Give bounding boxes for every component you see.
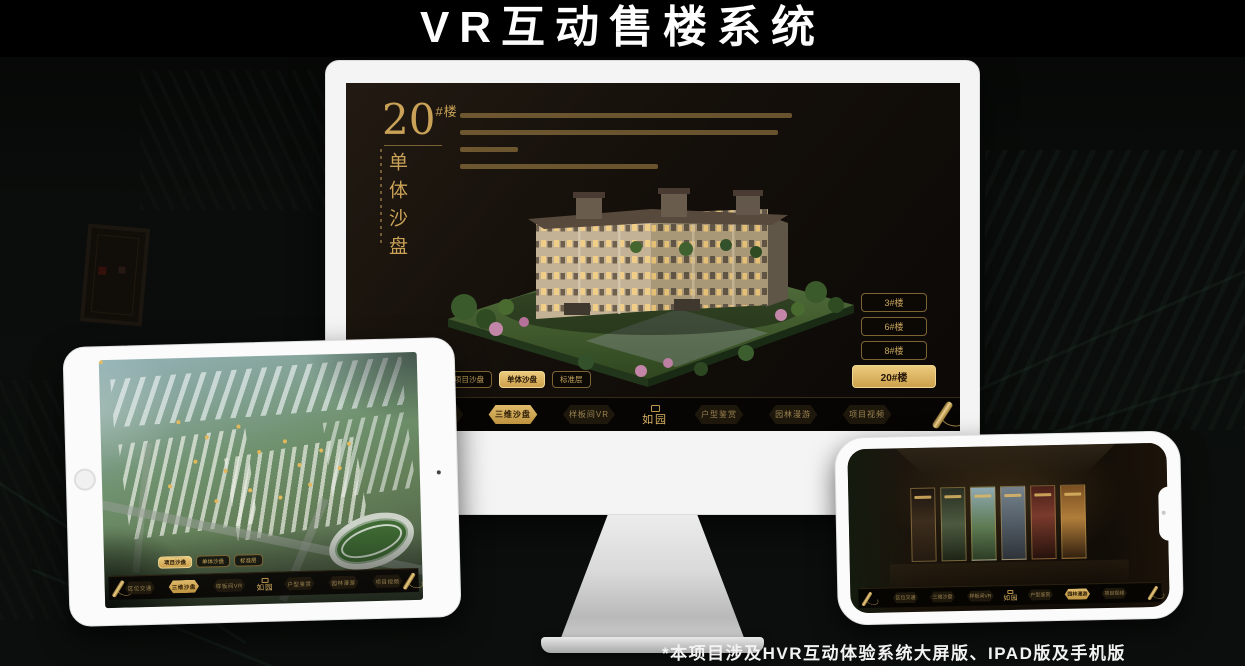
nav-item-showroom-vr[interactable]: 样板间VR xyxy=(558,405,620,424)
nav-item-unit-appreciation[interactable]: 户型鉴赏 xyxy=(1025,589,1055,601)
tab-standard-floor[interactable]: 标准层 xyxy=(552,371,591,388)
background-buildings xyxy=(140,70,340,210)
monitor-stand-neck xyxy=(559,515,746,643)
tab-single-sandbox[interactable]: 单体沙盘 xyxy=(196,555,230,568)
nav-item-garden-roam[interactable]: 园林漫游 xyxy=(1062,588,1092,600)
nav-item-project-video[interactable]: 项目视频 xyxy=(838,405,896,424)
nav-item-showroom-vr[interactable]: 样板间VR xyxy=(964,590,996,602)
poster-canvas: VR互动售楼系统 20#楼 单体沙盘 xyxy=(0,0,1245,666)
nav-item-garden-roam[interactable]: 园林漫游 xyxy=(325,575,361,589)
brand-logo: 如园 xyxy=(256,577,273,591)
tab-standard-floor[interactable]: 标准层 xyxy=(234,554,263,567)
phone-notch xyxy=(1158,487,1170,541)
nav-item-garden-roam[interactable]: 园林漫游 xyxy=(764,405,822,424)
gallery-card-building[interactable] xyxy=(1000,486,1027,561)
building-number-suffix: #楼 xyxy=(435,104,457,119)
hero-divider xyxy=(384,145,442,146)
scroll-menu-icon[interactable] xyxy=(861,591,872,606)
phone-device: 区位交通 三维沙盘 样板间VR 如园 户型鉴赏 园林漫游 项目视频 xyxy=(834,430,1184,625)
hero-subtitle: 单体沙盘 xyxy=(384,152,411,272)
gallery-card-shelf[interactable] xyxy=(1060,484,1087,559)
brand-logo: 如园 xyxy=(642,405,668,425)
floor-selector: 3#楼 6#楼 8#楼 20#楼 xyxy=(852,293,936,388)
nav-item-location-traffic[interactable]: 区位交通 xyxy=(890,592,920,604)
background-road-line xyxy=(972,269,1245,394)
gallery-card-pavilion[interactable] xyxy=(1030,485,1057,560)
scroll-menu-icon[interactable] xyxy=(1147,585,1158,600)
description-line xyxy=(460,130,778,135)
nav-item-3d-sandbox[interactable]: 三维沙盘 xyxy=(166,580,202,594)
page-title: VR互动售楼系统 xyxy=(0,0,1245,57)
phone-screen: 区位交通 三维沙盘 样板间VR 如园 户型鉴赏 园林漫游 项目视频 xyxy=(847,443,1169,614)
phone-camera-icon xyxy=(1162,511,1166,515)
gallery-card-interior[interactable] xyxy=(910,488,937,563)
nav-item-project-video[interactable]: 项目视频 xyxy=(369,574,405,588)
tab-single-sandbox[interactable]: 单体沙盘 xyxy=(499,371,545,388)
seal-icon xyxy=(651,405,660,412)
nav-item-showroom-vr[interactable]: 样板间VR xyxy=(210,578,249,592)
gallery-card-garden[interactable] xyxy=(970,486,997,561)
nav-item-3d-sandbox[interactable]: 三维沙盘 xyxy=(484,405,542,424)
tablet-screen: 项目沙盘 单体沙盘 标准层 区位交通 三维沙盘 样板间VR 如园 户型鉴赏 园林… xyxy=(99,352,423,608)
background-plaque xyxy=(80,223,150,326)
description-line xyxy=(460,147,518,152)
hero-english-caption xyxy=(380,149,382,245)
view-tabs: 项目沙盘 单体沙盘 标准层 xyxy=(446,371,591,388)
floor-button-20[interactable]: 20#楼 xyxy=(852,365,936,388)
nav-item-unit-appreciation[interactable]: 户型鉴赏 xyxy=(281,577,317,591)
interior-beam xyxy=(895,444,1116,479)
nav-item-unit-appreciation[interactable]: 户型鉴赏 xyxy=(690,405,748,424)
floor-button-3[interactable]: 3#楼 xyxy=(861,293,927,312)
nav-item-3d-sandbox[interactable]: 三维沙盘 xyxy=(927,591,957,603)
footnote-text: *本项目涉及HVR互动体验系统大屏版、IPAD版及手机版 xyxy=(662,639,1126,664)
brand-logo: 如园 xyxy=(1003,590,1018,602)
nav-item-project-video[interactable]: 项目视频 xyxy=(1099,587,1129,599)
description-line xyxy=(460,113,792,118)
building-model[interactable] xyxy=(436,157,872,395)
tablet-camera-icon xyxy=(437,470,441,474)
floor-button-6[interactable]: 6#楼 xyxy=(861,317,927,336)
scroll-menu-icon[interactable] xyxy=(931,401,953,430)
building-number: 20 xyxy=(382,95,435,144)
monitor-stand xyxy=(511,515,794,655)
tab-project-sandbox[interactable]: 项目沙盘 xyxy=(158,556,192,569)
background-buildings xyxy=(985,150,1245,430)
floor-button-8[interactable]: 8#楼 xyxy=(861,341,927,360)
tablet-device: 项目沙盘 单体沙盘 标准层 区位交通 三维沙盘 样板间VR 如园 户型鉴赏 园林… xyxy=(62,337,461,627)
scene-gallery xyxy=(910,484,1087,562)
scroll-menu-icon[interactable] xyxy=(112,579,125,597)
gallery-card-courtyard[interactable] xyxy=(940,487,967,562)
